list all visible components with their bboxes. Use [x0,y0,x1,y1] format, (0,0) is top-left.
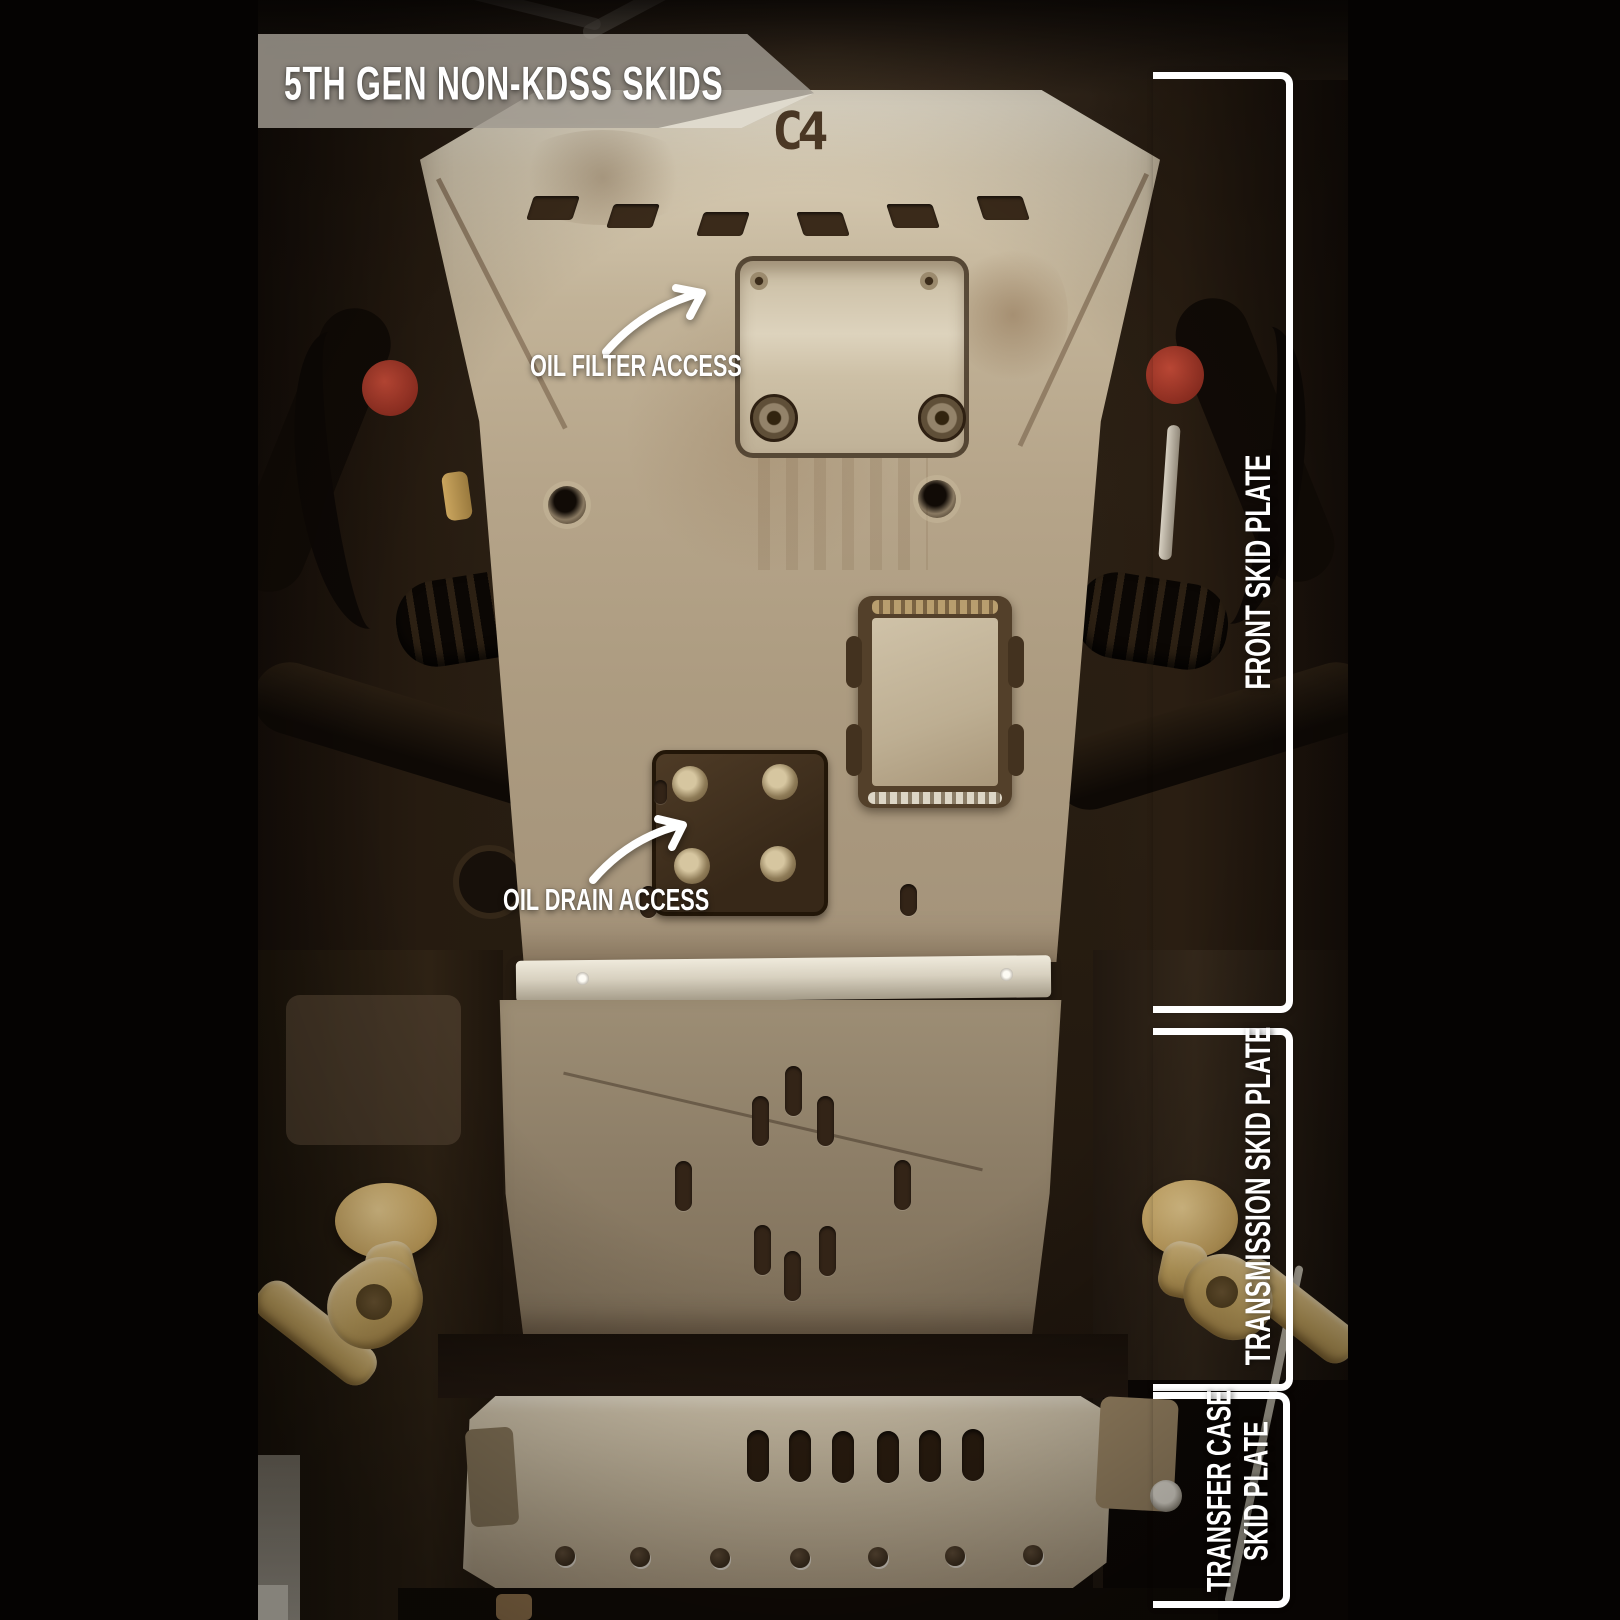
oil-filter-access-label: OIL FILTER ACCESS [530,348,742,384]
transfer-label-line1: TRANSFER CASE [1200,1390,1238,1592]
transfer-label-line2: SKID PLATE [1237,1421,1275,1561]
oil-drain-access-label: OIL DRAIN ACCESS [503,882,709,918]
title-ribbon: 5TH GEN NON-KDSS SKIDS [258,34,814,128]
annotation-overlay: 5TH GEN NON-KDSS SKIDS OIL FILTER ACCESS… [0,0,1620,1620]
banner-title: 5TH GEN NON-KDSS SKIDS [284,56,723,111]
annotated-underbody-photo: C4 [0,0,1620,1620]
curved-arrow-icon [585,812,701,888]
